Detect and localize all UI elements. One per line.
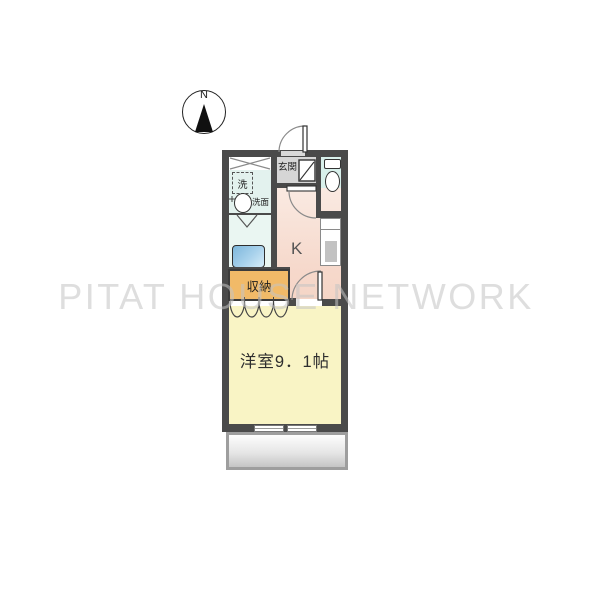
faucet-icon bbox=[229, 196, 235, 202]
compass-north-label: N bbox=[182, 90, 226, 101]
mainroom-door-arc bbox=[292, 271, 321, 300]
entrance-door-arc bbox=[279, 126, 305, 152]
bath-folding-door-icon bbox=[237, 215, 257, 227]
mainroom-door-leaf bbox=[318, 272, 322, 300]
plan-linework bbox=[0, 0, 600, 600]
main-room-label: 洋室9．1帖 bbox=[229, 354, 341, 371]
entrance-door-leaf bbox=[303, 126, 307, 152]
entrance-label: 玄関 bbox=[278, 163, 297, 173]
kitchen-label: K bbox=[291, 240, 302, 257]
hall-door-arc bbox=[289, 191, 316, 218]
void-x-icon bbox=[230, 158, 270, 169]
hall-door-leaf bbox=[287, 186, 316, 191]
closet-folding-doors-icon bbox=[230, 301, 288, 317]
closet-door-hinges bbox=[245, 297, 274, 301]
washbasin-label: 洗面 bbox=[252, 198, 269, 207]
